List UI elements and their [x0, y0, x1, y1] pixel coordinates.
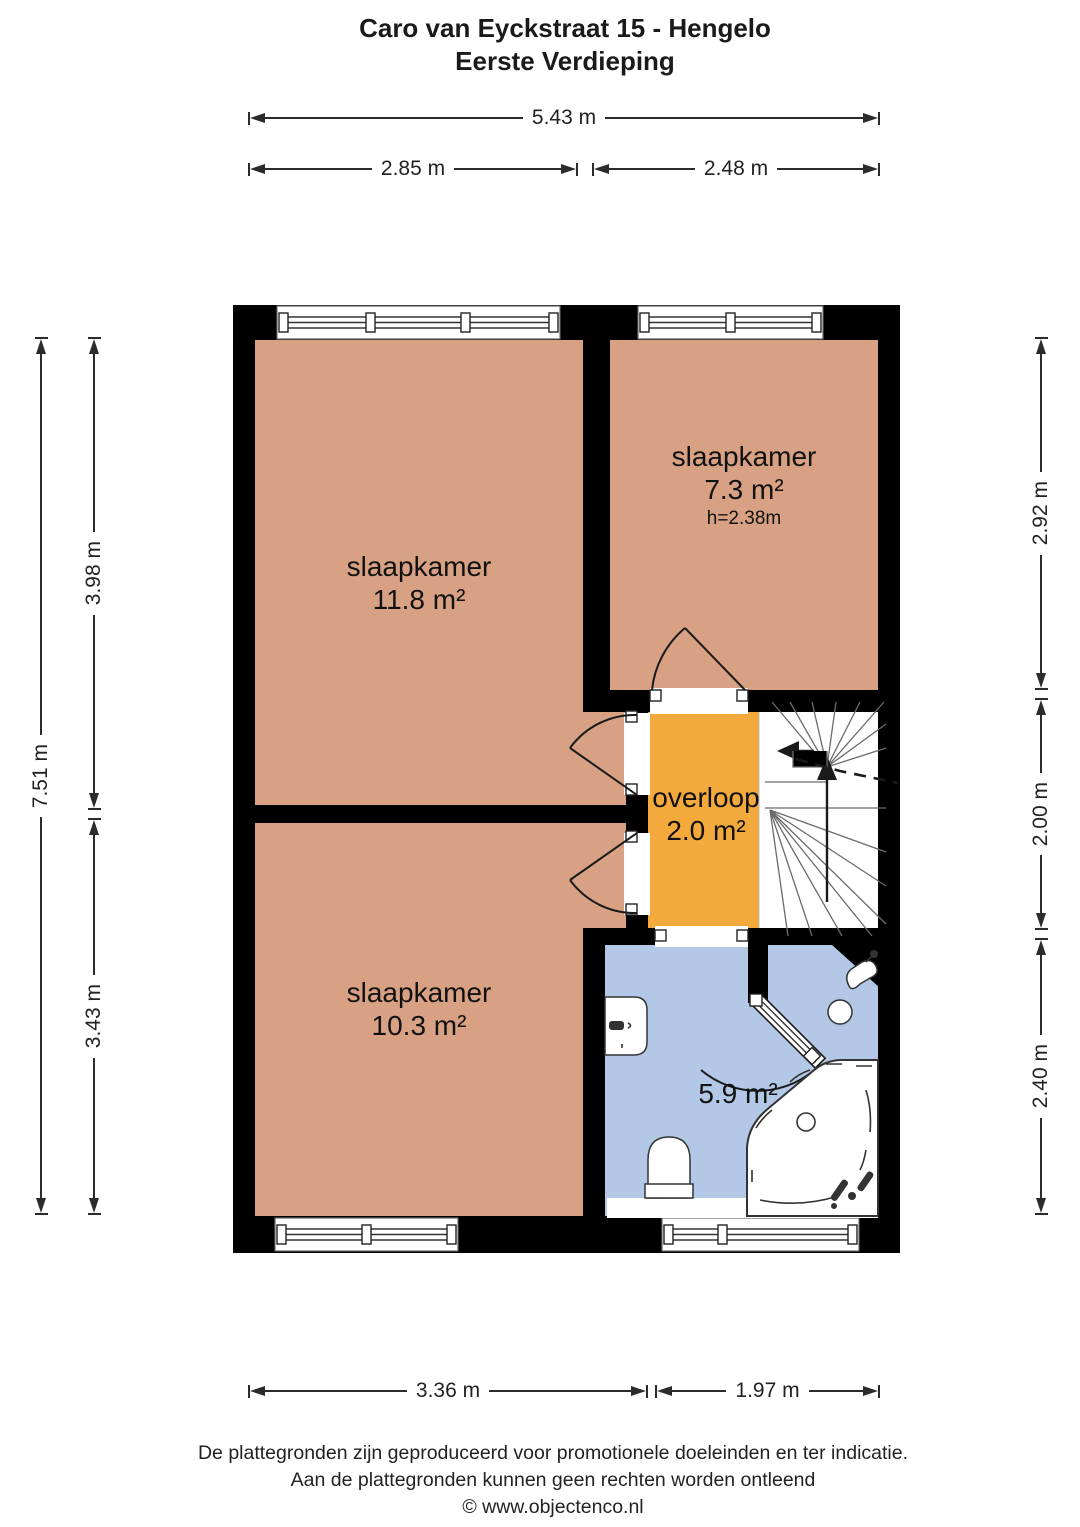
toilet-icon — [645, 1137, 693, 1198]
room-label-bedroom-2: slaapkamer 7.3 m² h=2.38m — [672, 440, 817, 532]
room-label-landing: overloop 2.0 m² — [652, 781, 759, 847]
disclaimer-line-1: De plattegronden zijn geproduceerd voor … — [0, 1440, 1080, 1467]
dim-left-upper: 3.98 m — [83, 337, 105, 810]
dim-top-total: 5.43 m — [248, 107, 880, 129]
room-area: 11.8 m² — [347, 583, 492, 616]
room-name: overloop — [652, 781, 759, 814]
room-name: slaapkamer — [347, 976, 492, 1009]
window-icon-bedroom-2 — [638, 306, 823, 339]
room-label-bathroom: 5.9 m² — [698, 1077, 777, 1110]
dim-right-lower: 2.40 m — [1030, 938, 1052, 1215]
dim-right-upper: 2.92 m — [1030, 337, 1052, 690]
dim-top-right: 2.48 m — [592, 158, 880, 180]
dim-top-left: 2.85 m — [248, 158, 578, 180]
dim-left-total: 7.51 m — [30, 337, 52, 1215]
floorplan-drawing — [0, 0, 1080, 1527]
room-area: 2.0 m² — [652, 814, 759, 847]
room-area: 5.9 m² — [698, 1077, 777, 1110]
dim-bottom-right: 1.97 m — [655, 1380, 880, 1402]
room-ceiling-height: h=2.38m — [672, 506, 817, 532]
room-name: slaapkamer — [347, 550, 492, 583]
room-name: slaapkamer — [672, 440, 817, 473]
dim-bottom-left: 3.36 m — [248, 1380, 648, 1402]
room-label-bedroom-3: slaapkamer 10.3 m² — [347, 976, 492, 1042]
disclaimer-line-2: Aan de plattegronden kunnen geen rechten… — [0, 1467, 1080, 1494]
room-label-bedroom-1: slaapkamer 11.8 m² — [347, 550, 492, 616]
window-icon-bedroom-3 — [275, 1218, 458, 1251]
room-area: 7.3 m² — [672, 473, 817, 506]
window-icon-bathroom — [662, 1218, 859, 1251]
room-area: 10.3 m² — [347, 1009, 492, 1042]
floorplan-page: Caro van Eyckstraat 15 - Hengelo Eerste … — [0, 0, 1080, 1527]
copyright: © www.objectenco.nl — [0, 1494, 1080, 1521]
washbasin-icon — [605, 997, 647, 1055]
dim-left-lower: 3.43 m — [83, 818, 105, 1215]
window-icon-bedroom-1 — [277, 306, 560, 339]
dim-right-middle: 2.00 m — [1030, 698, 1052, 930]
disclaimer: De plattegronden zijn geproduceerd voor … — [0, 1440, 1080, 1521]
